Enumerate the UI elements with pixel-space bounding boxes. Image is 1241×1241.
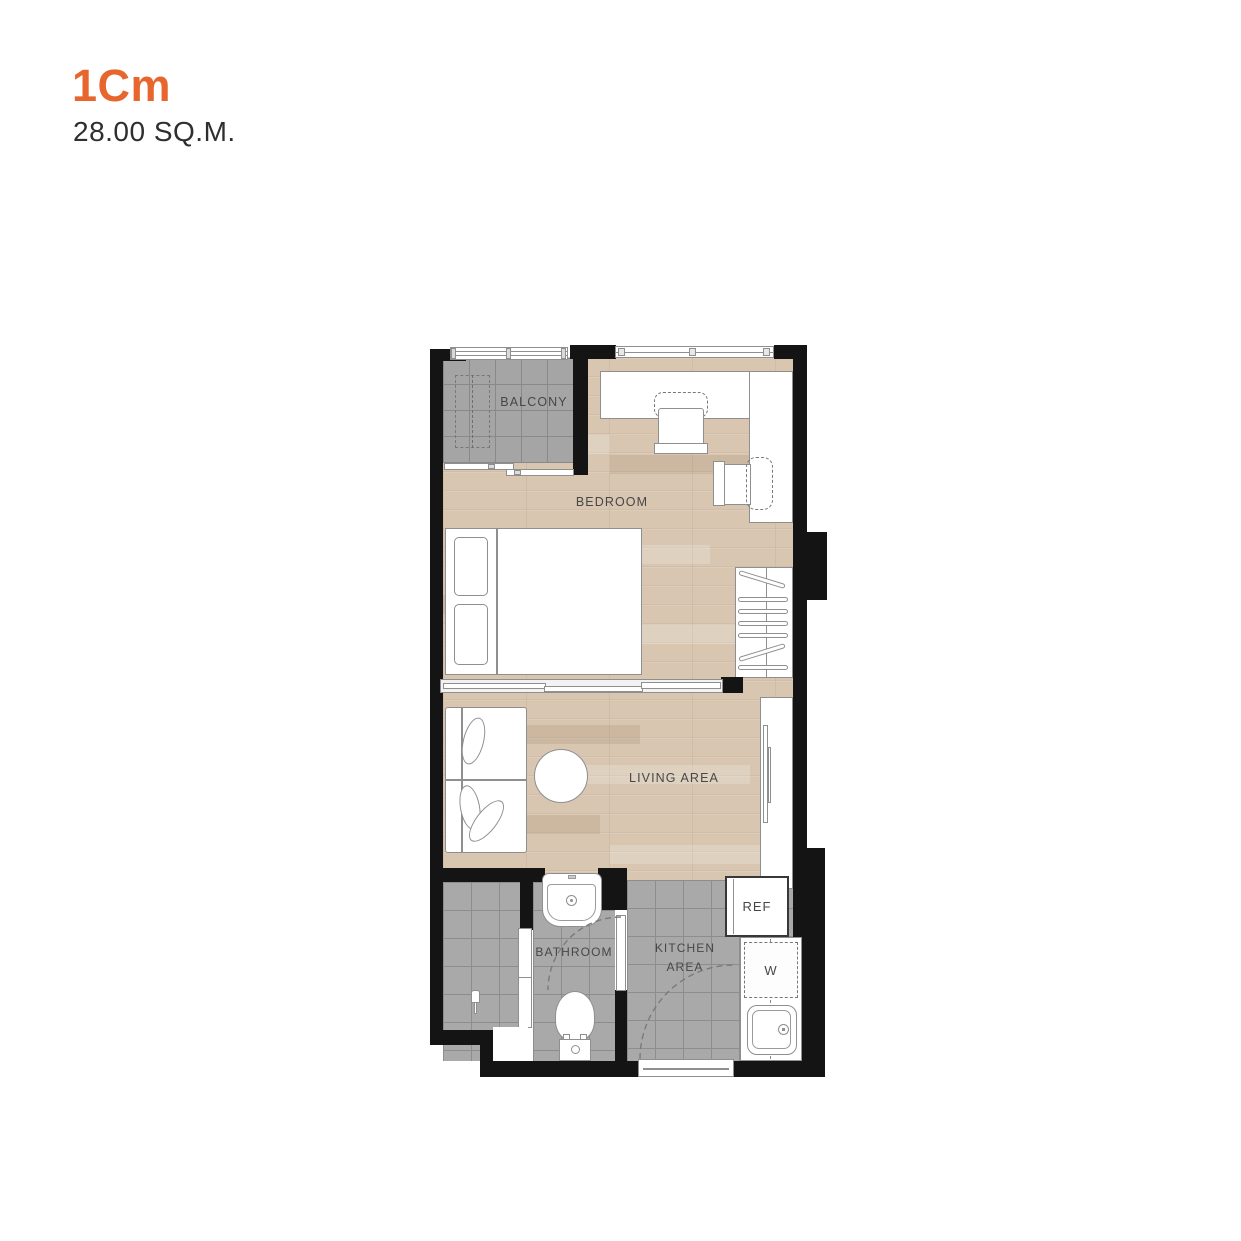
entrance-door-arc bbox=[640, 965, 734, 1059]
unit-area: 28.00 SQ.M. bbox=[73, 116, 236, 148]
floor-plan: REF W BALCONY BEDROOM LIVING AREA BATHRO… bbox=[430, 345, 830, 1105]
page: { "header": { "title": "1Cm", "area": "2… bbox=[0, 0, 1241, 1241]
unit-type-title: 1Cm bbox=[72, 60, 171, 112]
bathroom-door-arc bbox=[548, 917, 621, 990]
door-swing-arcs bbox=[430, 345, 830, 1105]
